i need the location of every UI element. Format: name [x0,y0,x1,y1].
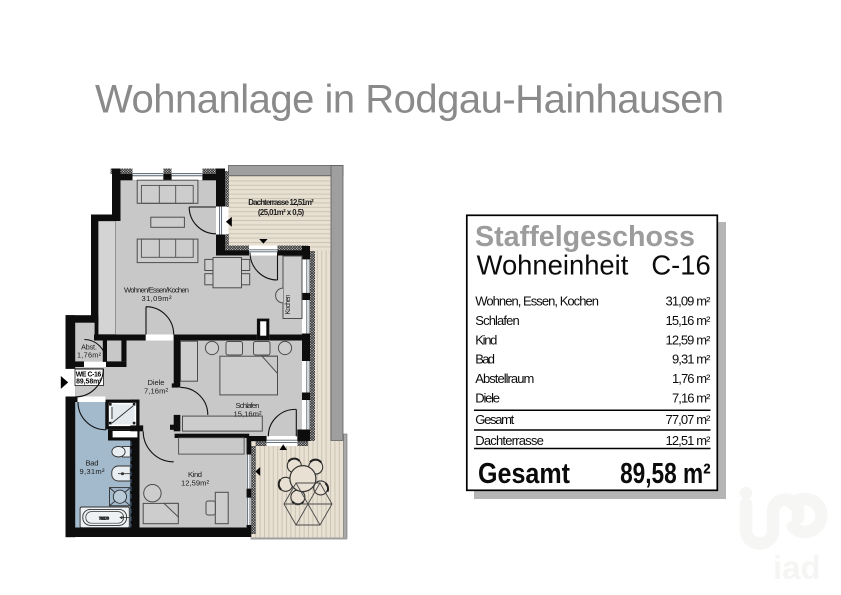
svg-text:12,59m²: 12,59m² [181,479,209,488]
svg-text:15,16m²: 15,16m² [234,409,262,418]
svg-text:Gesamt: Gesamt [475,412,514,427]
svg-text:Dachterrasse: Dachterrasse [475,433,544,448]
svg-text:Kind: Kind [475,332,497,347]
svg-text:31,09 m²: 31,09 m² [666,294,712,309]
svg-text:Gesamt: Gesamt [478,458,570,490]
svg-text:89,58m²: 89,58m² [76,379,102,386]
svg-text:C-16: C-16 [651,250,710,281]
svg-text:Staffelgeschoss: Staffelgeschoss [475,221,695,253]
svg-text:Dachterrasse 12,51m²: Dachterrasse 12,51m² [248,198,314,207]
svg-text:15,16 m²: 15,16 m² [666,313,712,328]
svg-text:12,59 m²: 12,59 m² [666,332,712,347]
svg-text:7,16 m²: 7,16 m² [672,391,711,406]
svg-text:75/170: 75/170 [99,516,109,520]
svg-text:12,51 m²: 12,51 m² [666,433,712,448]
svg-text:Wohnanlage in Rodgau-Hainhause: Wohnanlage in Rodgau-Hainhausen [95,78,724,122]
svg-text:31,09m²: 31,09m² [142,294,172,303]
svg-text:Kochen: Kochen [285,294,292,314]
svg-text:1,76m²: 1,76m² [77,351,102,360]
svg-text:9,31m²: 9,31m² [80,467,105,476]
svg-text:Abstellraum: Abstellraum [475,371,534,386]
svg-text:iad: iad [773,549,821,586]
svg-text:Bad: Bad [475,352,495,367]
svg-text:89,58 m²: 89,58 m² [620,458,711,490]
svg-text:Schlafen: Schlafen [475,313,519,328]
svg-text:7,16m²: 7,16m² [144,386,168,395]
svg-text:77,07 m²: 77,07 m² [666,412,712,427]
svg-text:Diele: Diele [475,391,500,406]
svg-text:Wohneinheit: Wohneinheit [477,250,629,281]
svg-text:9,31 m²: 9,31 m² [672,352,711,367]
svg-text:1,76 m²: 1,76 m² [672,371,711,386]
svg-text:(25,01m² x 0,5): (25,01m² x 0,5) [258,208,305,217]
svg-text:Wohnen, Essen, Kochen: Wohnen, Essen, Kochen [475,294,599,309]
svg-text:WE C-16: WE C-16 [76,371,102,378]
